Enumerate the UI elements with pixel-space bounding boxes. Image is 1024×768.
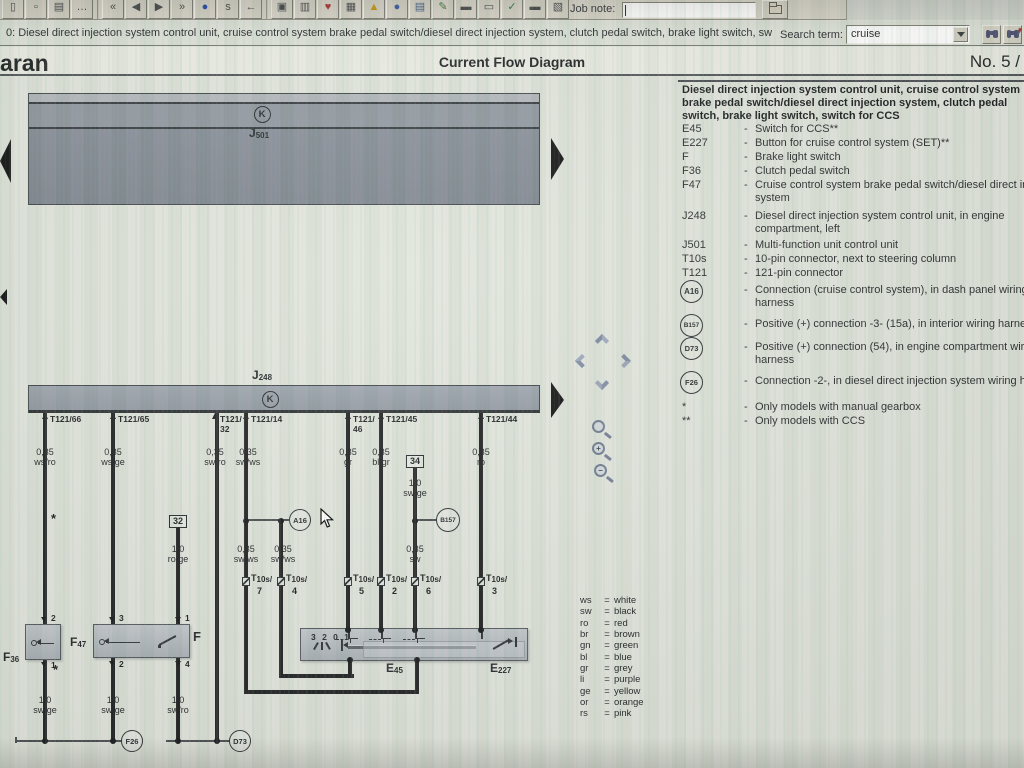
- color-name: pink: [614, 708, 631, 719]
- color-legend-row: ro=red: [580, 618, 644, 629]
- nav-next-button[interactable]: ▶: [148, 0, 170, 19]
- color-legend-row: br=brown: [580, 629, 644, 640]
- color-name: grey: [614, 663, 632, 674]
- t10s-pin-number: 6: [426, 586, 431, 596]
- wire: [43, 413, 47, 625]
- print-button[interactable]: ▤: [48, 0, 70, 19]
- entry-dash: -: [744, 239, 748, 252]
- pin-dot: [478, 627, 484, 633]
- find-next-button[interactable]: [1003, 25, 1022, 44]
- f47-f-switch-block[interactable]: [93, 624, 190, 658]
- print-preview-icon: ▥: [300, 2, 310, 13]
- wire: [346, 413, 350, 632]
- check-icon: ✓: [507, 2, 516, 13]
- equals: =: [600, 708, 614, 719]
- find-button[interactable]: [982, 25, 1001, 44]
- wire: [279, 674, 354, 678]
- entry-text: Positive (+) connection -3- (15a), in in…: [755, 318, 1024, 331]
- unit-top-strip: [29, 94, 539, 102]
- new-document-icon: ▯: [10, 2, 16, 13]
- pencil-icon: ✎: [438, 2, 447, 13]
- edit-button[interactable]: ✎: [432, 0, 454, 19]
- wire-size: 0,35: [204, 447, 226, 457]
- open-document-icon: ▫: [34, 2, 38, 13]
- junction-dot: [175, 738, 181, 744]
- junction-line: [16, 740, 121, 742]
- t121-pin-label: T121/44: [486, 414, 517, 424]
- t10s-pin-number: 3: [492, 586, 497, 596]
- connector-sub: 10s/: [292, 575, 308, 584]
- car-search-icon: ▭: [484, 2, 494, 13]
- nav-first-icon: «: [110, 2, 116, 13]
- entry-text: Multi-function unit control unit: [755, 239, 898, 252]
- component-number: 248: [259, 373, 272, 382]
- form-icon: ▧: [553, 2, 563, 13]
- color-code: sw: [580, 606, 600, 617]
- wire-size: 1,0: [167, 695, 189, 705]
- entry-dash: -: [744, 401, 748, 414]
- pin-dot: [345, 627, 351, 633]
- connection-circle-b157: B157: [680, 314, 703, 337]
- t10s-label: T10s/: [353, 573, 374, 584]
- color-legend: ws=white sw=black ro=red br=brown gn=gre…: [580, 595, 644, 720]
- component-letter: E: [386, 661, 394, 675]
- entry-label: E227: [682, 137, 708, 150]
- contact-bracket: [417, 638, 425, 643]
- entry-label: F36: [682, 165, 701, 178]
- zoom-in-icon[interactable]: +: [592, 442, 605, 455]
- wire-color: sw/ws: [234, 554, 259, 564]
- favorites-button[interactable]: ♥: [317, 0, 339, 19]
- back-icon: ←: [246, 2, 257, 13]
- wire: [244, 690, 419, 694]
- t10s-label: T10s/: [251, 573, 272, 584]
- wire-color: sw: [406, 554, 424, 564]
- color-code: ws: [580, 595, 600, 606]
- continuation-arrow-right[interactable]: [551, 382, 564, 418]
- job-form-button[interactable]: ▧: [547, 0, 569, 19]
- entry-text: 121-pin connector: [755, 267, 843, 280]
- pin-dot: [347, 657, 353, 663]
- connector-sub: 10s/: [359, 575, 375, 584]
- entry-dash: -: [744, 179, 748, 192]
- wiring-reference-32[interactable]: 32: [169, 515, 187, 528]
- pin-arrow: [41, 617, 47, 622]
- component-number: 47: [77, 640, 86, 649]
- panel-divider: [678, 80, 1024, 82]
- f-label: F: [193, 629, 201, 644]
- t10s-pin-number: 5: [359, 586, 364, 596]
- component-number: 501: [256, 131, 269, 140]
- connector-icon: [411, 577, 419, 586]
- t10s-label: T10s/: [420, 573, 441, 584]
- wire-size: 1,0: [101, 695, 125, 705]
- contact-dashed-line: [403, 639, 415, 640]
- online-button[interactable]: ●: [386, 0, 408, 19]
- equals: =: [600, 686, 614, 697]
- dropdown-button[interactable]: [953, 27, 968, 42]
- diagram-path-text: 0: Diesel direct injection system contro…: [6, 27, 772, 39]
- save-icon: ▣: [277, 2, 287, 13]
- unit-line: [29, 127, 539, 129]
- t121-pin-label: T121/14: [251, 414, 282, 424]
- wiring-reference-34[interactable]: 34: [406, 455, 424, 468]
- entry-text: Cruise control system brake pedal switch…: [755, 179, 1024, 192]
- j501-label: J501: [249, 126, 269, 140]
- color-code: rs: [580, 708, 600, 719]
- connector-sub: 10s/: [257, 575, 273, 584]
- mouse-cursor: [320, 508, 335, 529]
- chevron-down-icon: [957, 32, 965, 37]
- color-name: purple: [614, 674, 640, 685]
- pin-number: 2: [119, 659, 124, 669]
- color-code: gr: [580, 663, 600, 674]
- equals: =: [600, 606, 614, 617]
- entry-label: E45: [682, 123, 702, 136]
- t10s-pin-number: 7: [257, 586, 262, 596]
- pin-arrow: [109, 661, 115, 666]
- entry-dash: -: [744, 415, 748, 428]
- nav-first-button[interactable]: «: [102, 0, 124, 19]
- wire-color: sw/ro: [167, 705, 189, 715]
- connection-d73[interactable]: D73: [229, 730, 251, 752]
- entry-dash: -: [744, 253, 748, 266]
- entry-dash: -: [744, 123, 748, 136]
- connector-icon: [377, 577, 385, 586]
- entry-dash: -: [744, 284, 748, 297]
- nav-last-button[interactable]: »: [171, 0, 193, 19]
- nav-previous-icon: ◀: [132, 2, 140, 13]
- pin-dot: [378, 627, 384, 633]
- t10s-pin-number: 4: [292, 586, 297, 596]
- wire-label: 1,0sw/ge: [101, 695, 125, 715]
- globe-icon: ●: [394, 2, 401, 13]
- connector-icon: [344, 577, 352, 586]
- entry-text: Only models with manual gearbox: [755, 401, 921, 414]
- entry-label: F47: [682, 179, 701, 192]
- color-name: orange: [614, 697, 644, 708]
- wire-label: 0,35sw/ws: [271, 544, 296, 564]
- equals: =: [600, 618, 614, 629]
- wire-color: sw/ws: [271, 554, 296, 564]
- color-code: bl: [580, 652, 600, 663]
- k-symbol: K: [262, 391, 279, 408]
- k-symbol: K: [254, 106, 271, 123]
- new-document-button[interactable]: ▯: [2, 0, 24, 19]
- f47-label: F47: [70, 635, 86, 649]
- color-code: or: [580, 697, 600, 708]
- color-name: black: [614, 606, 636, 617]
- entry-dash: -: [744, 375, 748, 388]
- j248-label: J248: [252, 368, 272, 382]
- color-name: blue: [614, 652, 632, 663]
- pin-number: 4: [185, 659, 190, 669]
- component-letter: F: [193, 629, 201, 644]
- toolbar-spacer: [846, 0, 1024, 20]
- asterisk-note: *: [51, 511, 56, 526]
- info-button[interactable]: ●: [194, 0, 216, 19]
- pin-dot: [412, 627, 418, 633]
- wire: [479, 413, 483, 632]
- junction-line: [417, 519, 437, 521]
- wire-label: 1,0sw/ge: [33, 695, 57, 715]
- wire-label: 0,35bl/gr: [372, 447, 390, 467]
- wire-label: 0,35sw: [406, 544, 424, 564]
- plus-sign: +: [596, 445, 601, 453]
- color-name: yellow: [614, 686, 640, 697]
- back-button[interactable]: ←: [240, 0, 262, 19]
- equals: =: [600, 629, 614, 640]
- wire-label: 0,35ws/ro: [34, 447, 56, 467]
- vehicle-search-button[interactable]: ▭: [478, 0, 500, 19]
- j248-control-unit-box[interactable]: [28, 385, 540, 413]
- job-note-input[interactable]: [622, 2, 756, 18]
- wire-color: ro: [472, 457, 490, 467]
- entry-text: Connection -2-, in diesel direct injecti…: [755, 375, 1024, 388]
- wire-size: 0,35: [271, 544, 296, 554]
- color-legend-row: bl=blue: [580, 652, 644, 663]
- color-code: ro: [580, 618, 600, 629]
- connection-f26[interactable]: F26: [121, 730, 143, 752]
- connector-icon: [277, 577, 285, 586]
- open-document-button[interactable]: ▫: [25, 0, 47, 19]
- color-code: br: [580, 629, 600, 640]
- t121-pin-label: T121/45: [386, 414, 417, 424]
- button-arrow: [508, 638, 513, 644]
- contact-bracket: [350, 638, 358, 643]
- t121-pin-label: 32: [220, 424, 229, 434]
- component-letter: J: [249, 126, 256, 140]
- color-legend-row: or=orange: [580, 697, 644, 708]
- connection-a16[interactable]: A16: [289, 509, 311, 531]
- heart-icon: ♥: [325, 2, 332, 13]
- continuation-arrow-left[interactable]: [0, 139, 11, 183]
- pan-left-icon[interactable]: [575, 354, 589, 368]
- job-note-label: Job note:: [570, 3, 615, 15]
- color-name: brown: [614, 629, 640, 640]
- t121-pin-label: T121/: [353, 414, 375, 424]
- continuation-arrow-right[interactable]: [551, 138, 564, 180]
- pan-down-icon[interactable]: [595, 376, 609, 390]
- junction-dot: [243, 518, 249, 524]
- t10s-label: T10s/: [486, 573, 507, 584]
- wire: [379, 413, 383, 632]
- wire-color: ro/ge: [168, 554, 189, 564]
- wire-color: sw/ge: [101, 705, 125, 715]
- binoculars-next-icon: [1007, 30, 1019, 39]
- color-code: li: [580, 674, 600, 685]
- toolbar-separator: [97, 0, 99, 19]
- entry-text-2: harness: [755, 297, 794, 310]
- entry-label: J248: [682, 210, 706, 223]
- connector-icon: [477, 577, 485, 586]
- entry-text: Only models with CCS: [755, 415, 865, 428]
- entry-text: Positive (+) connection (54), in engine …: [755, 341, 1024, 354]
- wire-label: 0,35ws/ge: [101, 447, 125, 467]
- pan-right-icon[interactable]: [617, 354, 631, 368]
- entry-text: 10-pin connector, next to steering colum…: [755, 253, 956, 266]
- connector-icon: [242, 577, 250, 586]
- component-letter: J: [252, 368, 259, 382]
- history-button[interactable]: s: [217, 0, 239, 19]
- contact-arrow: [36, 639, 41, 645]
- warning-button[interactable]: ▲: [363, 0, 385, 19]
- folder-icon: [769, 5, 782, 14]
- continuation-arrow-left-small[interactable]: [0, 289, 7, 305]
- equals: =: [600, 640, 614, 651]
- color-legend-row: rs=pink: [580, 708, 644, 719]
- wire-label: 1,0ro/ge: [168, 544, 189, 564]
- wire-size: 0,35: [34, 447, 56, 457]
- print-document-button[interactable]: ▤: [409, 0, 431, 19]
- entry-text: Diesel direct injection system control u…: [755, 210, 1004, 223]
- vehicle-history-button[interactable]: ▬: [524, 0, 546, 19]
- e227-label: E227: [490, 661, 511, 675]
- vehicle-data-button[interactable]: ▬: [455, 0, 477, 19]
- t10s-pin-number: 2: [392, 586, 397, 596]
- equals: =: [600, 663, 614, 674]
- notes-icon: ▦: [346, 2, 356, 13]
- end-stop: [515, 637, 517, 647]
- wire-size: 1,0: [168, 544, 189, 554]
- wire-color: ws/ro: [34, 457, 56, 467]
- pin-number: 2: [51, 613, 56, 623]
- more-options-button[interactable]: …: [71, 0, 93, 19]
- t121-pin-label: T121/65: [118, 414, 149, 424]
- wire-label: 1,0sw/ge: [403, 478, 427, 498]
- equals: =: [600, 595, 614, 606]
- color-legend-row: gn=green: [580, 640, 644, 651]
- entry-text: Switch for CCS**: [755, 123, 838, 136]
- wire-size: 0,35: [406, 544, 424, 554]
- connection-circle-f26: F26: [680, 371, 703, 394]
- junction-dot: [110, 738, 116, 744]
- pan-up-icon[interactable]: [595, 334, 609, 348]
- search-value: cruise: [851, 28, 880, 40]
- entry-label: *: [682, 401, 686, 414]
- entry-dash: -: [744, 341, 748, 354]
- color-legend-row: li=purple: [580, 674, 644, 685]
- print-preview-button[interactable]: ▥: [294, 0, 316, 19]
- t121-pin-label: T121/66: [50, 414, 81, 424]
- position-pointer: [313, 642, 318, 650]
- car-history-icon: ▬: [530, 2, 541, 13]
- wire-color: gr: [339, 457, 357, 467]
- save-button[interactable]: ▣: [271, 0, 293, 19]
- wire-label: 0,35sw/ro: [204, 447, 226, 467]
- wire-color: ws/ge: [101, 457, 125, 467]
- wire-color: bl/gr: [372, 457, 390, 467]
- search-combobox[interactable]: cruise: [846, 25, 970, 44]
- entry-dash: -: [744, 318, 748, 331]
- wire-size: 0,35: [236, 447, 261, 457]
- t10s-label: T10s/: [286, 573, 307, 584]
- pin-arrow: [175, 617, 181, 622]
- component-letter: E: [490, 661, 498, 675]
- entry-text-2: system: [755, 192, 790, 205]
- junction-dot: [278, 518, 284, 524]
- wire-color: sw/ws: [236, 457, 261, 467]
- entry-text: Button for cruise control system (SET)**: [755, 137, 949, 150]
- wire-size: 0,35: [339, 447, 357, 457]
- f36-clutch-pedal-switch[interactable]: [25, 624, 61, 660]
- panel-title-line: Diesel direct injection system control u…: [682, 84, 1020, 96]
- nav-next-icon: ▶: [155, 2, 163, 13]
- color-code: gn: [580, 640, 600, 651]
- zoom-area-icon[interactable]: [592, 420, 605, 433]
- entry-text: Brake light switch: [755, 151, 841, 164]
- binoculars-icon: [986, 30, 998, 39]
- color-name: white: [614, 595, 636, 606]
- f36-label: F36: [3, 650, 19, 664]
- position-pointer: [325, 642, 330, 650]
- color-name: green: [614, 640, 638, 651]
- toolbar-separator: [266, 0, 268, 19]
- t121-pin-label: 46: [353, 424, 362, 434]
- equals: =: [600, 652, 614, 663]
- car-icon: ▬: [461, 2, 472, 13]
- contact-dashed-line: [336, 639, 348, 640]
- component-number: 45: [394, 666, 403, 675]
- wire-color: sw/ro: [204, 457, 226, 467]
- entry-dash: -: [744, 210, 748, 223]
- color-legend-row: gr=grey: [580, 663, 644, 674]
- printer-icon: ▤: [415, 2, 425, 13]
- color-legend-row: sw=black: [580, 606, 644, 617]
- color-name: red: [614, 618, 628, 629]
- switch-blade: [159, 635, 176, 645]
- minus-sign: −: [598, 467, 603, 475]
- entry-label: J501: [682, 239, 706, 252]
- panel-title-line: switch, brake light switch, switch for C…: [682, 110, 900, 122]
- wire-color: sw/ge: [403, 488, 427, 498]
- component-number: 227: [498, 666, 511, 675]
- position-pointer: [321, 642, 323, 650]
- junction-dot: [412, 518, 418, 524]
- contact-arrow: [104, 638, 109, 644]
- more-options-icon: …: [77, 2, 88, 13]
- wire-label: 0,35ro: [472, 447, 490, 467]
- unit-band: [29, 104, 539, 128]
- wire-color: sw/ge: [33, 705, 57, 715]
- zoom-out-icon[interactable]: −: [594, 464, 607, 477]
- entry-text: Clutch pedal switch: [755, 165, 850, 178]
- equals: =: [600, 674, 614, 685]
- page-header: haran Current Flow Diagram No. 5 /: [0, 47, 1024, 76]
- contact-line: [106, 642, 140, 644]
- wire-label: 0,35gr: [339, 447, 357, 467]
- warning-icon: ▲: [369, 2, 380, 13]
- export-note-button[interactable]: [762, 0, 788, 19]
- connection-b157[interactable]: B157: [436, 508, 460, 532]
- connection-circle-a16: A16: [680, 280, 703, 303]
- connector-sub: 10s/: [392, 575, 408, 584]
- checklist-button[interactable]: ✓: [501, 0, 523, 19]
- connector-sub: 10s/: [492, 575, 508, 584]
- info-icon: ●: [202, 2, 209, 13]
- switch-positions: 3 2 0 1: [311, 632, 351, 642]
- nav-previous-button[interactable]: ◀: [125, 0, 147, 19]
- entry-label: T121: [682, 267, 707, 280]
- notes-button[interactable]: ▦: [340, 0, 362, 19]
- wire-size: 0,35: [101, 447, 125, 457]
- pin-arrow: [109, 617, 115, 622]
- application-window: ▯ ▫ ▤ … « ◀ ▶ » ● s ← ▣ ▥ ♥ ▦ ▲ ● ▤ ✎ ▬ …: [0, 0, 1024, 768]
- wire-label: 0,35sw/ws: [236, 447, 261, 467]
- print-icon: ▤: [54, 2, 64, 13]
- j501-control-unit-box[interactable]: [28, 93, 540, 205]
- pin-dot: [414, 657, 420, 663]
